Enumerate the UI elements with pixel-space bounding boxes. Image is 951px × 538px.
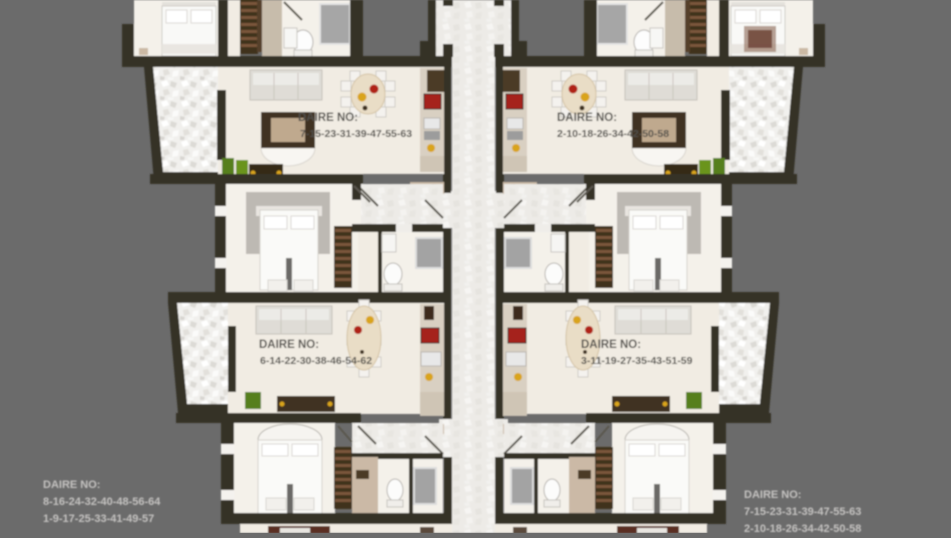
svg-text:7-15-23-31-39-47-55-63: 7-15-23-31-39-47-55-63	[300, 128, 412, 140]
svg-text:8-16-24-32-40-48-56-64: 8-16-24-32-40-48-56-64	[43, 496, 161, 508]
svg-text:1-9-17-25-33-41-49-57: 1-9-17-25-33-41-49-57	[43, 513, 154, 525]
svg-text:DAIRE NO:: DAIRE NO:	[259, 339, 319, 351]
svg-text:6-14-22-30-38-46-54-62: 6-14-22-30-38-46-54-62	[260, 355, 372, 367]
svg-text:DAIRE NO:: DAIRE NO:	[744, 489, 801, 501]
svg-text:2-10-18-26-34-42-50-58: 2-10-18-26-34-42-50-58	[557, 128, 669, 140]
svg-text:DAIRE NO:: DAIRE NO:	[557, 112, 617, 124]
svg-text:DAIRE NO:: DAIRE NO:	[581, 339, 641, 351]
svg-text:DAIRE NO:: DAIRE NO:	[298, 112, 358, 124]
svg-text:3-11-19-27-35-43-51-59: 3-11-19-27-35-43-51-59	[581, 355, 693, 367]
svg-text:2-10-18-26-34-42-50-58: 2-10-18-26-34-42-50-58	[744, 523, 861, 533]
svg-text:DAIRE NO:: DAIRE NO:	[43, 479, 100, 491]
svg-text:7-15-23-31-39-47-55-63: 7-15-23-31-39-47-55-63	[744, 506, 861, 518]
